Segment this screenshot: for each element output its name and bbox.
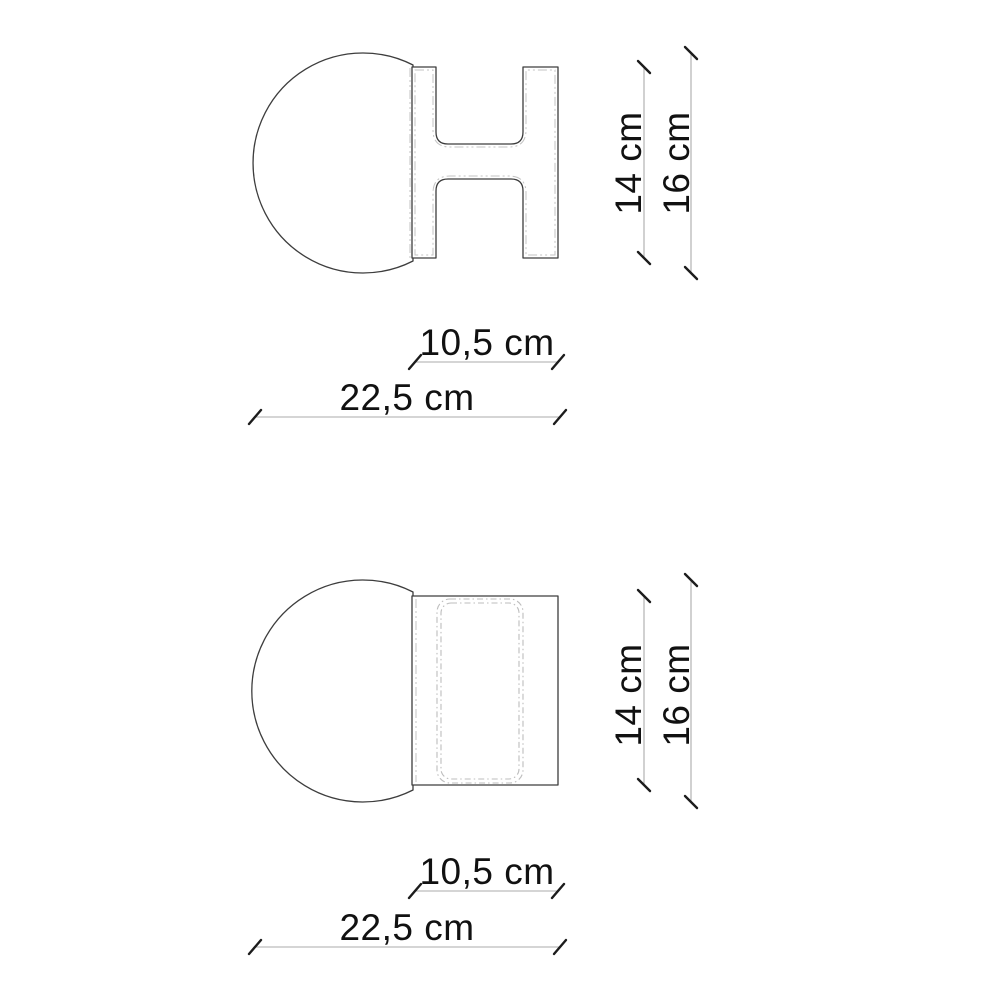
front-view-dim-bracket-height: 14 cm xyxy=(608,590,650,791)
dim-label-bracket-height: 14 cm xyxy=(608,643,649,746)
dim-label-total-height: 16 cm xyxy=(656,643,697,746)
technical-drawing-canvas: 14 cm 16 cm 10,5 cm 22,5 cm xyxy=(0,0,1000,1000)
dim-label-bracket-width: 10,5 cm xyxy=(419,322,554,363)
front-view-dim-bracket-width: 10,5 cm xyxy=(409,851,564,898)
dim-label-total-height: 16 cm xyxy=(656,111,697,214)
side-view-dim-total-width: 22,5 cm xyxy=(249,377,566,424)
dim-label-total-width: 22,5 cm xyxy=(339,907,474,948)
front-view-wall-plate-outline xyxy=(412,596,558,785)
side-view: 14 cm 16 cm 10,5 cm 22,5 cm xyxy=(249,47,697,424)
dim-label-bracket-height: 14 cm xyxy=(608,111,649,214)
side-view-dim-total-height: 16 cm xyxy=(656,47,697,279)
side-view-sphere-outline xyxy=(253,53,413,273)
side-view-dim-bracket-height: 14 cm xyxy=(608,61,650,264)
side-view-dim-bracket-width: 10,5 cm xyxy=(409,322,564,369)
dim-label-total-width: 22,5 cm xyxy=(339,377,474,418)
front-view-dim-total-height: 16 cm xyxy=(656,574,697,808)
front-view-dim-total-width: 22,5 cm xyxy=(249,907,566,954)
technical-drawing-page: 14 cm 16 cm 10,5 cm 22,5 cm xyxy=(0,0,1000,1000)
side-view-bracket-outline xyxy=(412,67,558,258)
dim-label-bracket-width: 10,5 cm xyxy=(419,851,554,892)
front-view-sphere-outline xyxy=(252,580,413,802)
front-view: 14 cm 16 cm 10,5 cm 22,5 cm xyxy=(249,574,697,954)
